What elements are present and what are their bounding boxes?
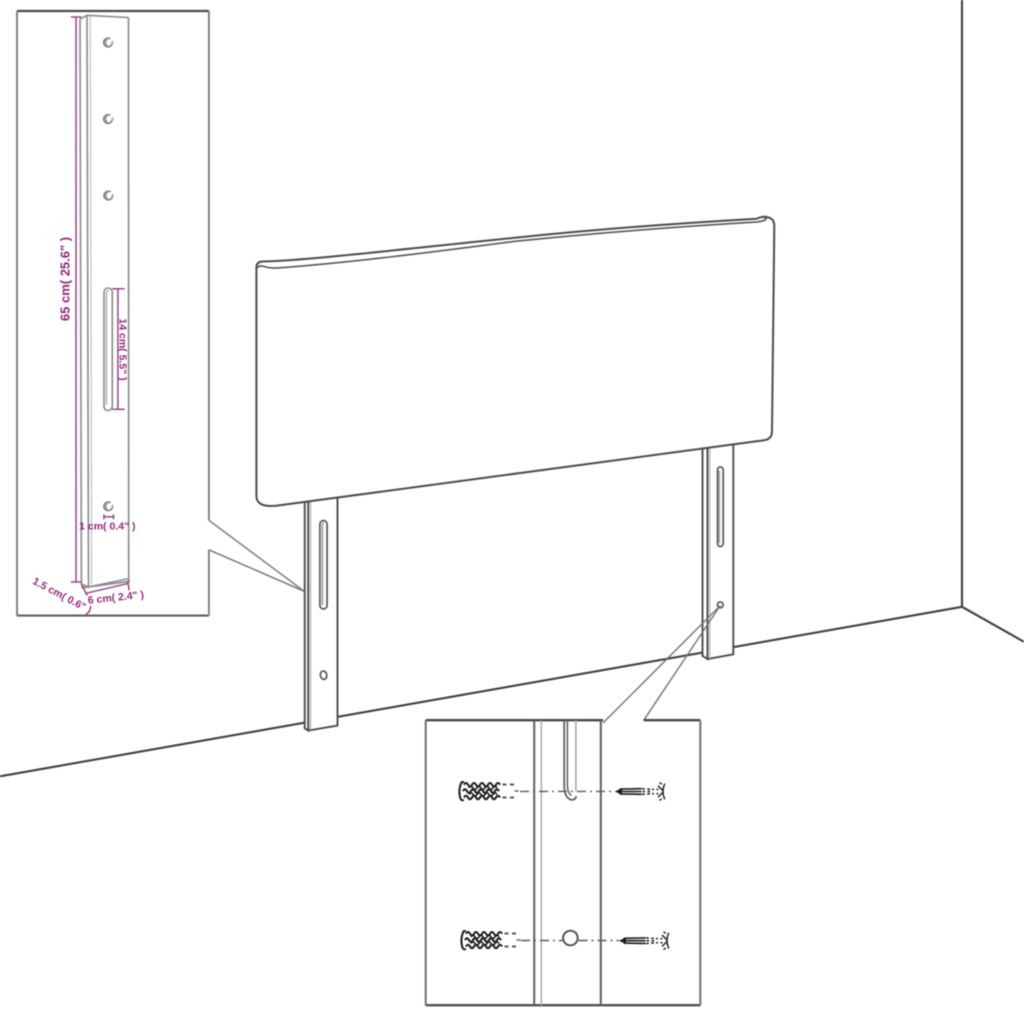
svg-text:1 cm( 0.4" ): 1 cm( 0.4" ) (79, 520, 135, 532)
svg-text:1.5 cm( 0.6" ): 1.5 cm( 0.6" ) (30, 575, 93, 616)
svg-text:14 cm( 5.5" ): 14 cm( 5.5" ) (117, 318, 129, 380)
svg-text:65 cm( 25.6" ): 65 cm( 25.6" ) (57, 237, 72, 321)
